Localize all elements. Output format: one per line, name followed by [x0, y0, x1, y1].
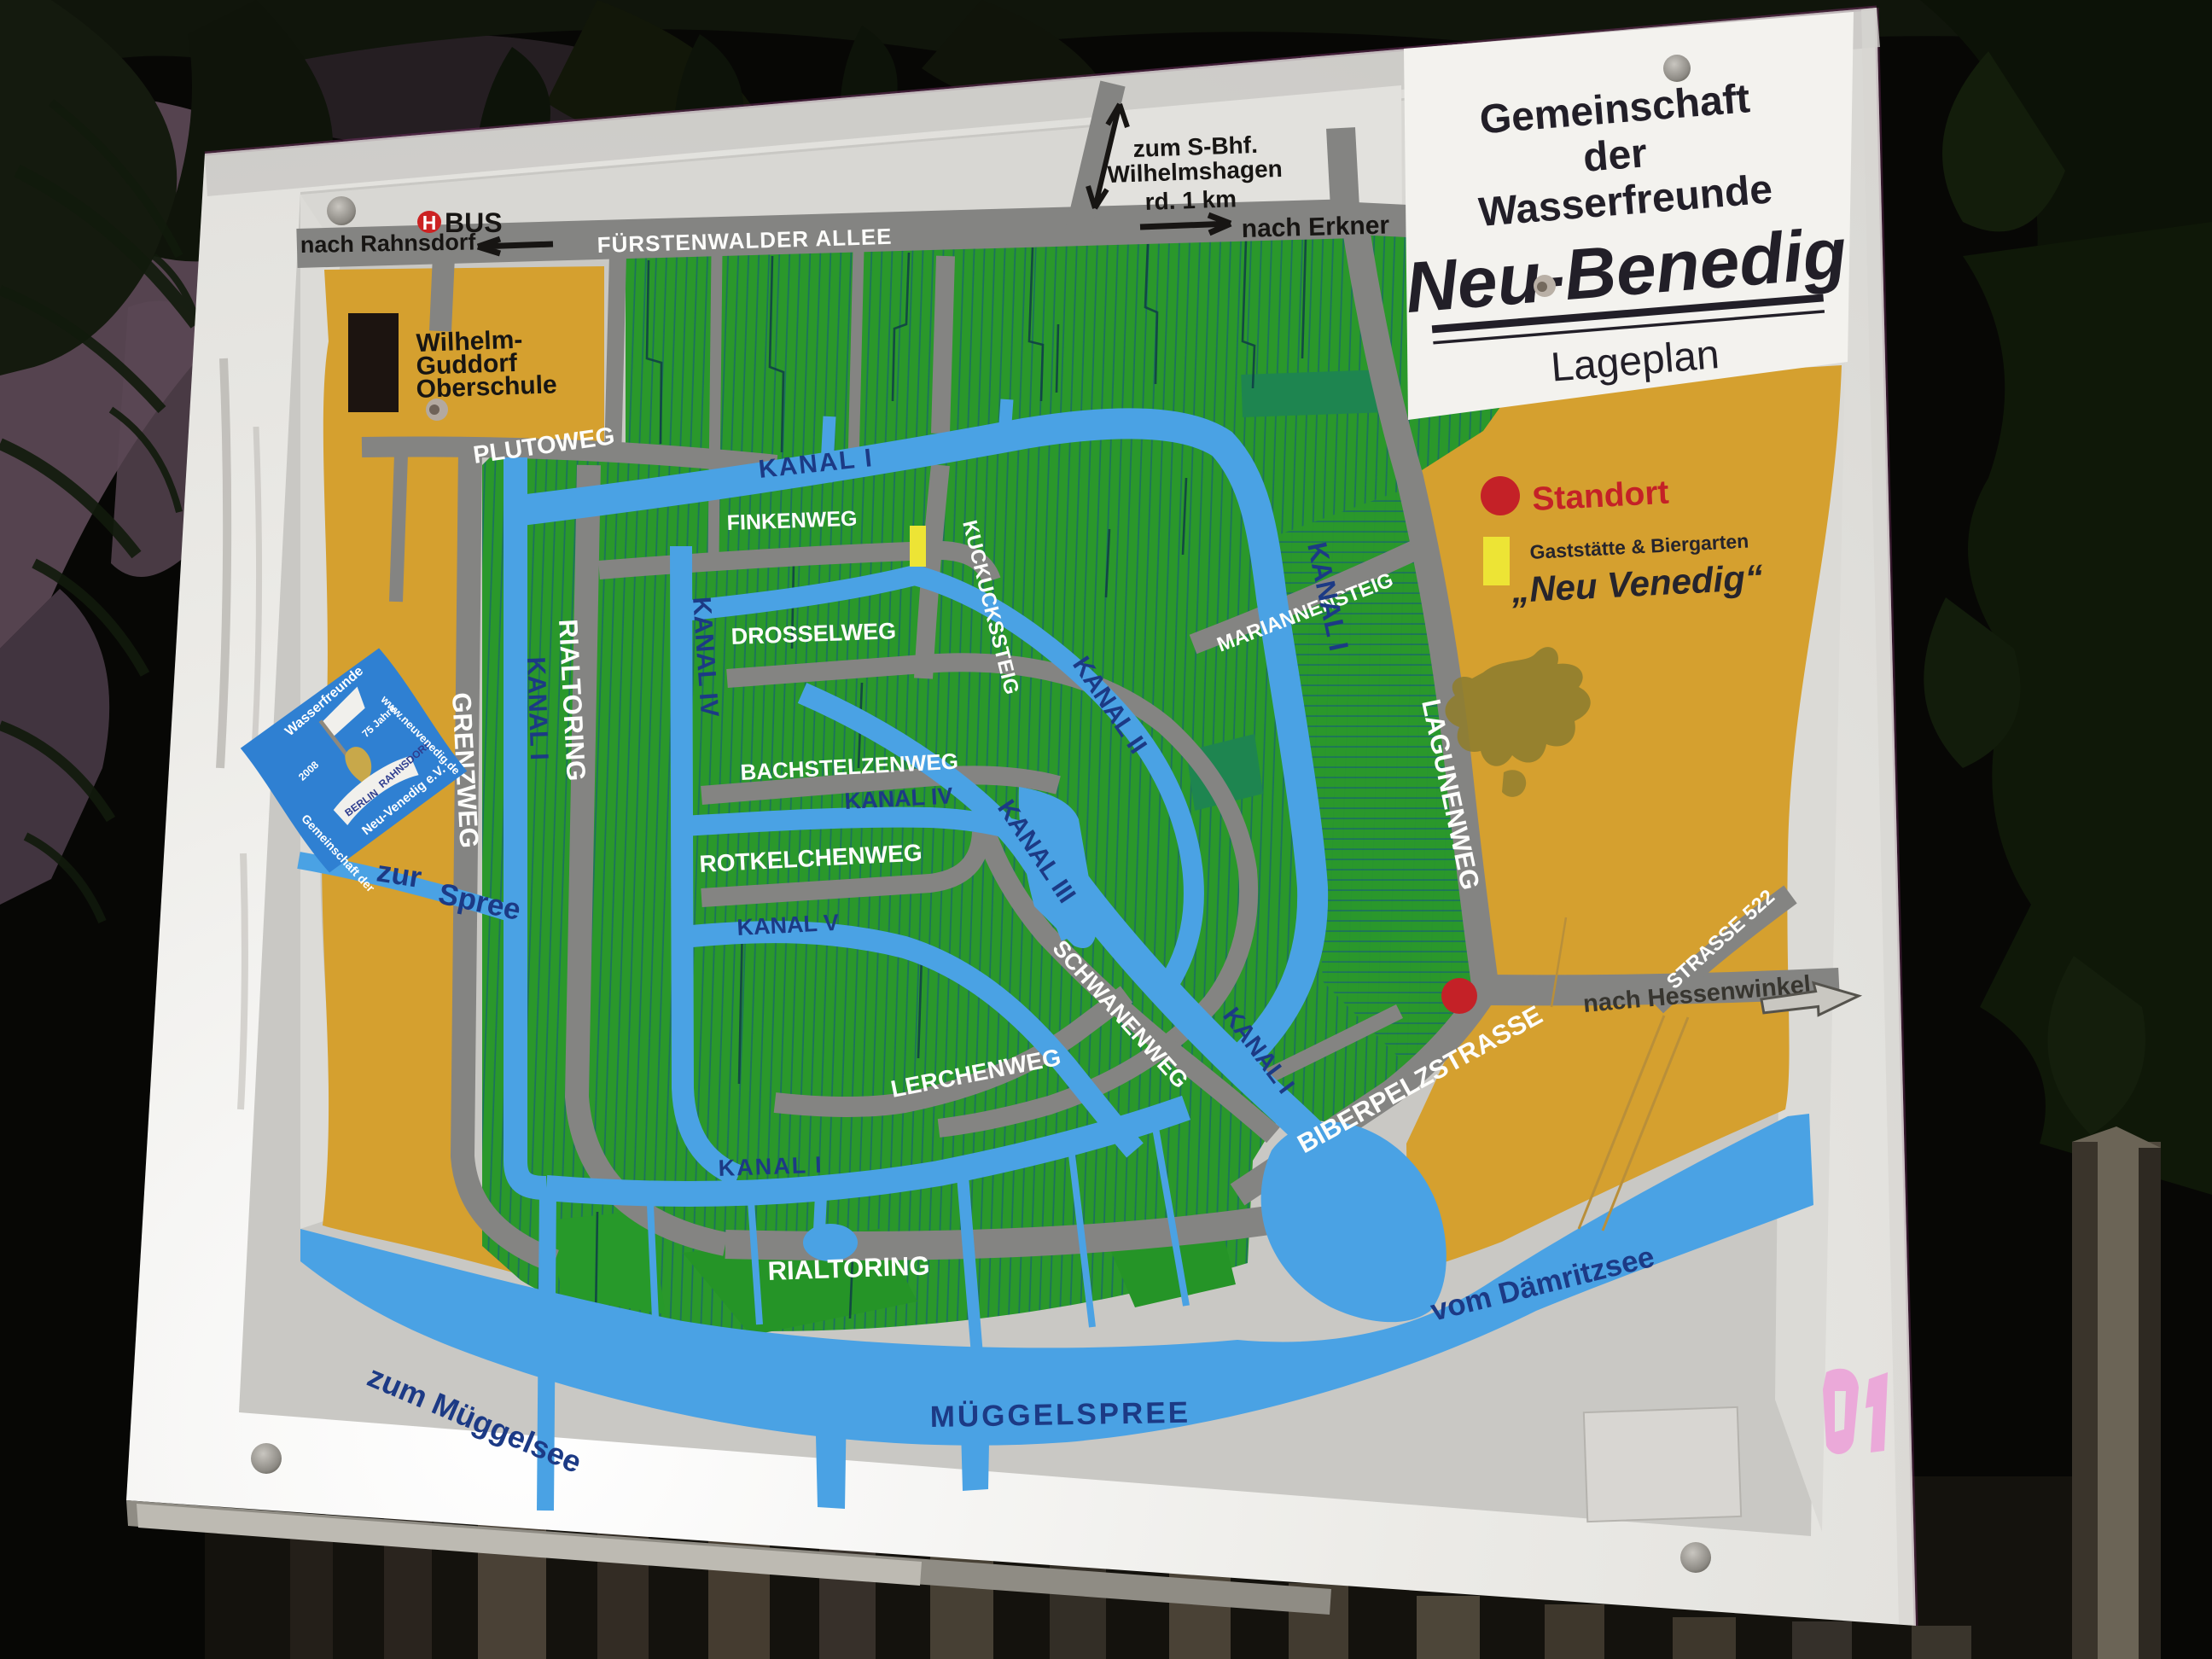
svg-text:RIALTORING: RIALTORING — [767, 1250, 930, 1286]
svg-text:nach Rahnsdorf: nach Rahnsdorf — [300, 229, 477, 258]
svg-text:KANAL I: KANAL I — [718, 1152, 824, 1181]
svg-text:zur: zur — [375, 854, 424, 894]
svg-text:FINKENWEG: FINKENWEG — [726, 507, 858, 535]
svg-text:rd. 1 km: rd. 1 km — [1144, 185, 1237, 215]
svg-text:KANAL V: KANAL V — [736, 910, 840, 940]
svg-text:KANAL I: KANAL I — [521, 656, 553, 760]
svg-text:nach Erkner: nach Erkner — [1241, 211, 1390, 243]
svg-text:Standort: Standort — [1531, 474, 1669, 518]
svg-text:MÜGGELSPREE: MÜGGELSPREE — [929, 1396, 1190, 1434]
svg-text:der: der — [1581, 131, 1649, 181]
